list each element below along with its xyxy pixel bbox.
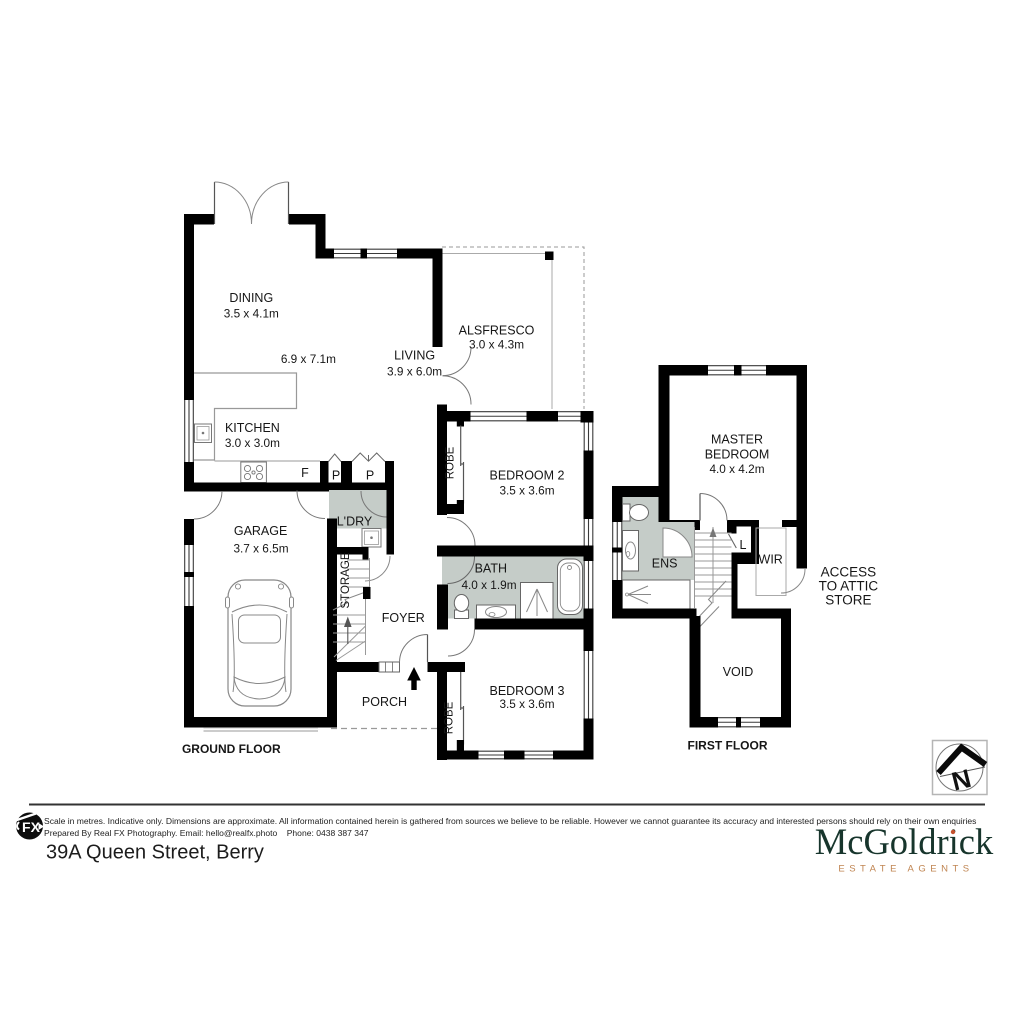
svg-text:ENS: ENS [652,557,678,571]
svg-text:BATH: BATH [475,562,507,576]
svg-text:FX: FX [22,819,41,835]
svg-text:3.5 x 3.6m: 3.5 x 3.6m [499,697,554,711]
svg-text:GARAGE: GARAGE [234,524,288,538]
svg-text:KITCHEN: KITCHEN [225,421,280,435]
svg-text:4.0 x 4.2m: 4.0 x 4.2m [709,462,764,476]
svg-text:BEDROOM 2: BEDROOM 2 [489,469,564,483]
svg-text:DINING: DINING [229,291,273,305]
svg-text:PORCH: PORCH [362,695,407,709]
svg-text:BEDROOM: BEDROOM [705,447,770,461]
svg-text:3.5 x 3.6m: 3.5 x 3.6m [499,484,554,498]
svg-text:6.9 x 7.1m: 6.9 x 7.1m [281,352,336,366]
svg-text:FOYER: FOYER [382,611,425,625]
svg-text:TO ATTIC: TO ATTIC [819,579,879,594]
svg-text:ALSFRESCO: ALSFRESCO [459,324,535,338]
svg-text:WIR: WIR [759,553,783,567]
svg-text:Prepared By Real FX Photograph: Prepared By Real FX Photography. Email: … [44,828,369,838]
svg-text:McGoldrick: McGoldrick [815,821,994,862]
svg-text:4.0 x 1.9m: 4.0 x 1.9m [461,578,516,592]
svg-text:L: L [740,538,747,552]
svg-text:3.5 x 4.1m: 3.5 x 4.1m [224,307,279,321]
svg-text:P: P [366,469,374,483]
svg-text:LIVING: LIVING [394,348,435,362]
svg-text:3.7 x 6.5m: 3.7 x 6.5m [233,542,288,556]
svg-text:FIRST FLOOR: FIRST FLOOR [688,738,768,752]
svg-text:F: F [301,466,309,480]
svg-text:ACCESS: ACCESS [821,565,877,580]
svg-text:3.9 x 6.0m: 3.9 x 6.0m [387,364,442,378]
svg-text:STORAGE: STORAGE [340,552,352,608]
svg-text:STORE: STORE [825,593,871,608]
svg-text:39A Queen Street, Berry: 39A Queen Street, Berry [46,842,264,864]
svg-text:VOID: VOID [723,665,754,679]
svg-text:ROBE: ROBE [444,701,456,734]
svg-text:ESTATE AGENTS: ESTATE AGENTS [838,864,973,875]
svg-text:L'DRY: L'DRY [337,515,373,529]
svg-text:BEDROOM 3: BEDROOM 3 [489,684,564,698]
svg-text:P: P [332,469,340,483]
svg-text:ROBE: ROBE [445,446,457,479]
svg-text:3.0 x 4.3m: 3.0 x 4.3m [469,338,524,352]
svg-text:MASTER: MASTER [711,432,763,446]
svg-text:GROUND FLOOR: GROUND FLOOR [182,742,281,756]
svg-text:3.0 x 3.0m: 3.0 x 3.0m [225,436,280,450]
